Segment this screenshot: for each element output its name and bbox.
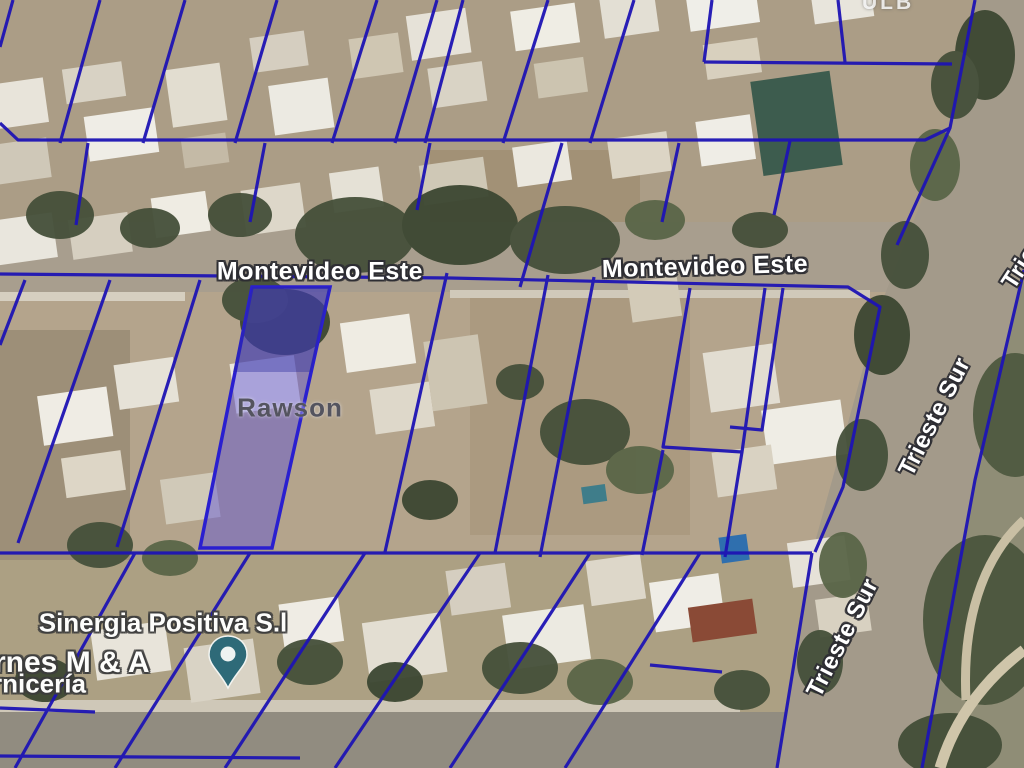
map-pin-icon[interactable] xyxy=(206,634,250,690)
partial-label-top: ULB xyxy=(862,0,914,15)
street-label-montevideo-este-1: Montevideo Este xyxy=(217,258,423,287)
parcel-boundaries-overlay xyxy=(0,0,1024,768)
poi-label-carniceria-partial: rnicería xyxy=(0,669,86,700)
satellite-map[interactable]: Montevideo Este Montevideo Este Trieste … xyxy=(0,0,1024,768)
locality-label-rawson: Rawson xyxy=(237,393,343,424)
parcel-lines xyxy=(0,0,1024,768)
street-label-montevideo-este-2: Montevideo Este xyxy=(602,250,809,284)
